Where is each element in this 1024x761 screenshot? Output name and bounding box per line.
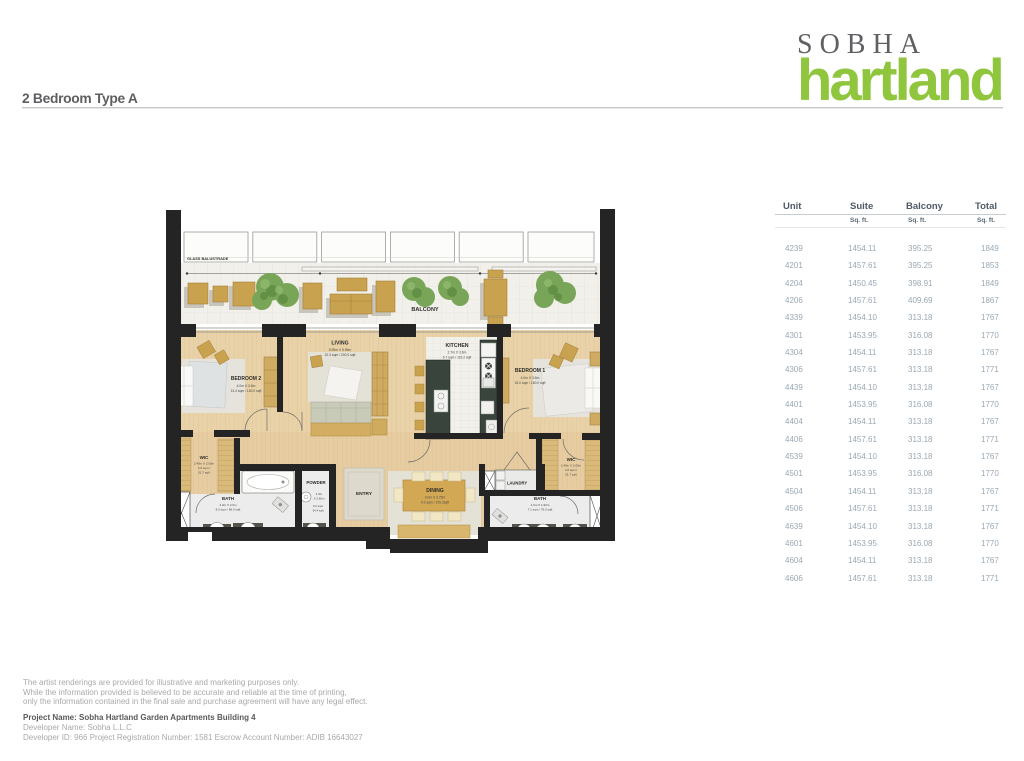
svg-text:2.40m X 2.00m: 2.40m X 2.00m (561, 464, 582, 468)
svg-text:9.0 sqm / 105.3sqft: 9.0 sqm / 105.3sqft (421, 501, 449, 505)
svg-text:8.0 sqm / 86.0 sqft: 8.0 sqm / 86.0 sqft (216, 508, 241, 512)
svg-text:2.40m X 2.00m: 2.40m X 2.00m (194, 462, 215, 466)
svg-text:7.1 sqm / 76.0 sqft: 7.1 sqm / 76.0 sqft (528, 508, 553, 512)
svg-text:34.4 sqft: 34.4 sqft (312, 509, 323, 513)
svg-text:4.6 sqm /: 4.6 sqm / (565, 468, 578, 472)
svg-text:4.0m X 3.6m: 4.0m X 3.6m (521, 376, 540, 380)
svg-text:3.0m X 3.75m: 3.0m X 3.75m (425, 496, 446, 500)
svg-text:BATH: BATH (222, 496, 234, 501)
svg-text:1.9m: 1.9m (316, 492, 323, 496)
svg-text:9.7 sqm / 115.2 sqft: 9.7 sqm / 115.2 sqft (443, 356, 472, 360)
svg-text:5.95m X 5.95m: 5.95m X 5.95m (329, 348, 352, 352)
svg-text:22.3 sqm / 240.0 sqft: 22.3 sqm / 240.0 sqft (325, 353, 356, 357)
svg-text:3.2 sqm: 3.2 sqm (313, 504, 324, 508)
svg-text:51.7 sqft: 51.7 sqft (565, 473, 577, 477)
svg-text:ENTRY: ENTRY (356, 491, 373, 497)
svg-text:BEDROOM 2: BEDROOM 2 (231, 376, 262, 382)
svg-text:51.7 sqft: 51.7 sqft (198, 471, 210, 475)
svg-text:4.0m X 3.6m: 4.0m X 3.6m (237, 384, 256, 388)
svg-text:DINING: DINING (426, 488, 444, 494)
svg-text:WIC: WIC (200, 455, 209, 460)
svg-text:4.6 sqm /: 4.6 sqm / (198, 466, 211, 470)
svg-text:2.7m X 3.6m: 2.7m X 3.6m (448, 351, 467, 355)
svg-text:LAUNDRY: LAUNDRY (507, 481, 528, 486)
svg-text:15.0 sqm / 160.0 sqft: 15.0 sqm / 160.0 sqft (515, 381, 546, 385)
svg-text:BEDROOM 1: BEDROOM 1 (515, 368, 546, 374)
svg-text:4.0m X 2.0m: 4.0m X 2.0m (219, 503, 237, 507)
svg-text:KITCHEN: KITCHEN (445, 343, 468, 349)
svg-text:BALCONY: BALCONY (411, 307, 439, 313)
svg-text:X 2.60m: X 2.60m (314, 497, 325, 501)
svg-text:GLASS BALUSTRADE: GLASS BALUSTRADE (187, 256, 229, 261)
svg-text:13.4 sqm / 160.0 sqft: 13.4 sqm / 160.0 sqft (231, 389, 262, 393)
svg-text:BATH: BATH (534, 496, 546, 501)
svg-text:4.0m X 1.90m: 4.0m X 1.90m (531, 503, 550, 507)
svg-text:LIVING: LIVING (331, 341, 348, 347)
svg-text:POWDER: POWDER (306, 480, 326, 485)
